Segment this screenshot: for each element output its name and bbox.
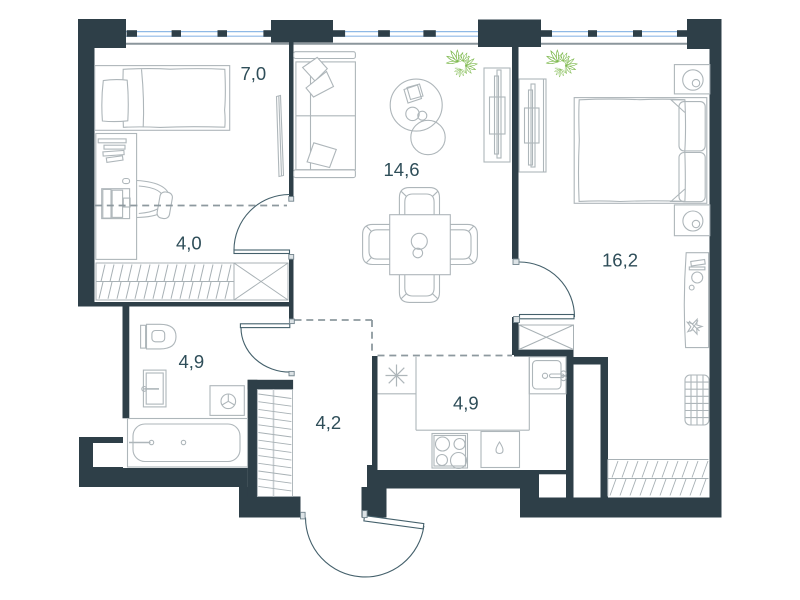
- svg-text:16,2: 16,2: [602, 250, 638, 271]
- svg-text:7,0: 7,0: [241, 63, 267, 84]
- svg-text:4,2: 4,2: [316, 412, 342, 433]
- svg-text:4,9: 4,9: [453, 393, 479, 414]
- svg-text:14,6: 14,6: [384, 159, 420, 180]
- svg-text:4,0: 4,0: [176, 233, 202, 254]
- svg-text:4,9: 4,9: [179, 351, 205, 372]
